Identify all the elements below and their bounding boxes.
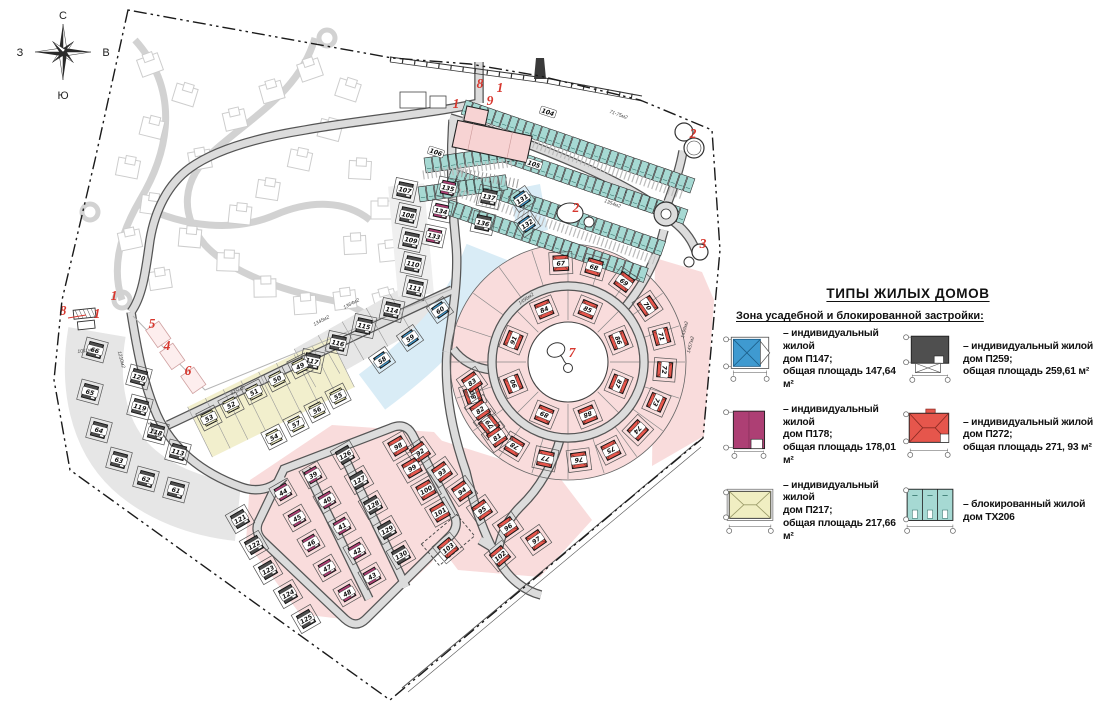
compass-east-label: В bbox=[102, 47, 109, 59]
house-type-icon-p217 bbox=[722, 483, 778, 535]
house-type-icon-p147 bbox=[722, 331, 778, 383]
faded-house bbox=[117, 226, 143, 251]
compass-north-label: С bbox=[59, 10, 67, 22]
site-plan-page: 6665646362611201191181131071081091101111… bbox=[0, 0, 1100, 720]
red-marker-6: 6 bbox=[185, 363, 192, 378]
svg-text:72: 72 bbox=[660, 365, 668, 374]
house-type-icon-p178 bbox=[722, 407, 778, 459]
red-marker-1: 1 bbox=[453, 96, 460, 111]
house-104: 104 bbox=[539, 106, 557, 119]
red-marker-4: 4 bbox=[163, 338, 171, 353]
compass-south-label: Ю bbox=[57, 90, 68, 102]
area-label: 1345м2 bbox=[312, 314, 330, 328]
legend-item-p147: – индивидуальный жилой дом П147; общая п… bbox=[722, 328, 902, 392]
area-label: 71-75м2 bbox=[608, 109, 628, 121]
red-marker-2: 2 bbox=[689, 126, 697, 141]
legend-item-text: – индивидуальный жилой дом П147; общая п… bbox=[783, 328, 902, 392]
svg-text:76: 76 bbox=[573, 455, 583, 463]
faded-house bbox=[287, 146, 313, 171]
legend-item-tx206: – блокированный жилой дом ТХ206 bbox=[902, 480, 1094, 544]
red-marker-2: 2 bbox=[572, 200, 580, 215]
red-marker-3: 3 bbox=[699, 236, 707, 251]
red-marker-9: 9 bbox=[487, 93, 494, 108]
compass-rose: С Ю З В bbox=[17, 10, 110, 102]
legend-item-p217: – индивидуальный жилой дом П217; общая п… bbox=[722, 480, 902, 544]
faded-house bbox=[349, 157, 372, 179]
faded-house bbox=[217, 250, 240, 272]
legend-item-text: – индивидуальный жилой дом П217; общая п… bbox=[783, 480, 902, 544]
faded-house bbox=[228, 202, 252, 225]
faded-house bbox=[258, 77, 285, 103]
faded-house bbox=[335, 75, 362, 102]
house-type-icon-p259 bbox=[902, 331, 958, 383]
legend-item-text: – индивидуальный жилой дом П259; общая п… bbox=[963, 341, 1093, 379]
faded-house bbox=[178, 225, 202, 248]
red-marker-1: 1 bbox=[497, 80, 504, 95]
red-marker-8: 8 bbox=[477, 76, 484, 91]
faded-house bbox=[296, 55, 324, 82]
legend-item-p259: – индивидуальный жилой дом П259; общая п… bbox=[902, 328, 1094, 392]
legend-title: ТИПЫ ЖИЛЫХ ДОМОВ bbox=[722, 286, 1094, 301]
legend-item-p272: – индивидуальный жилой дом П272; общая п… bbox=[902, 404, 1094, 468]
faded-house bbox=[254, 276, 276, 297]
red-marker-5: 5 bbox=[149, 316, 156, 331]
existing-development-faded bbox=[82, 30, 402, 345]
legend-item-text: – блокированный жилой дом ТХ206 bbox=[963, 499, 1085, 525]
legend-subtitle: Зона усадебной и блокированной застройки… bbox=[722, 310, 1094, 322]
faded-house bbox=[222, 106, 248, 131]
faded-house bbox=[139, 114, 165, 140]
faded-house bbox=[343, 232, 366, 254]
faded-house bbox=[256, 176, 281, 200]
faded-house bbox=[147, 266, 172, 290]
legend-grid: – индивидуальный жилой дом П147; общая п… bbox=[722, 328, 1094, 543]
red-marker-1: 1 bbox=[111, 288, 118, 303]
legend-item-text: – индивидуальный жилой дом П272; общая п… bbox=[963, 417, 1093, 455]
legend-item-text: – индивидуальный жилой дом П178; общая п… bbox=[783, 404, 902, 468]
svg-text:67: 67 bbox=[556, 260, 566, 267]
house-type-icon-p272 bbox=[902, 407, 958, 459]
red-marker-1: 1 bbox=[94, 306, 101, 321]
house-type-icon-tx206 bbox=[902, 483, 958, 535]
legend-panel: ТИПЫ ЖИЛЫХ ДОМОВ Зона усадебной и блокир… bbox=[722, 286, 1094, 543]
legend-item-p178: – индивидуальный жилой дом П178; общая п… bbox=[722, 404, 902, 468]
faded-house bbox=[172, 80, 199, 107]
faded-house bbox=[115, 154, 141, 179]
compass-west-label: З bbox=[17, 47, 24, 59]
